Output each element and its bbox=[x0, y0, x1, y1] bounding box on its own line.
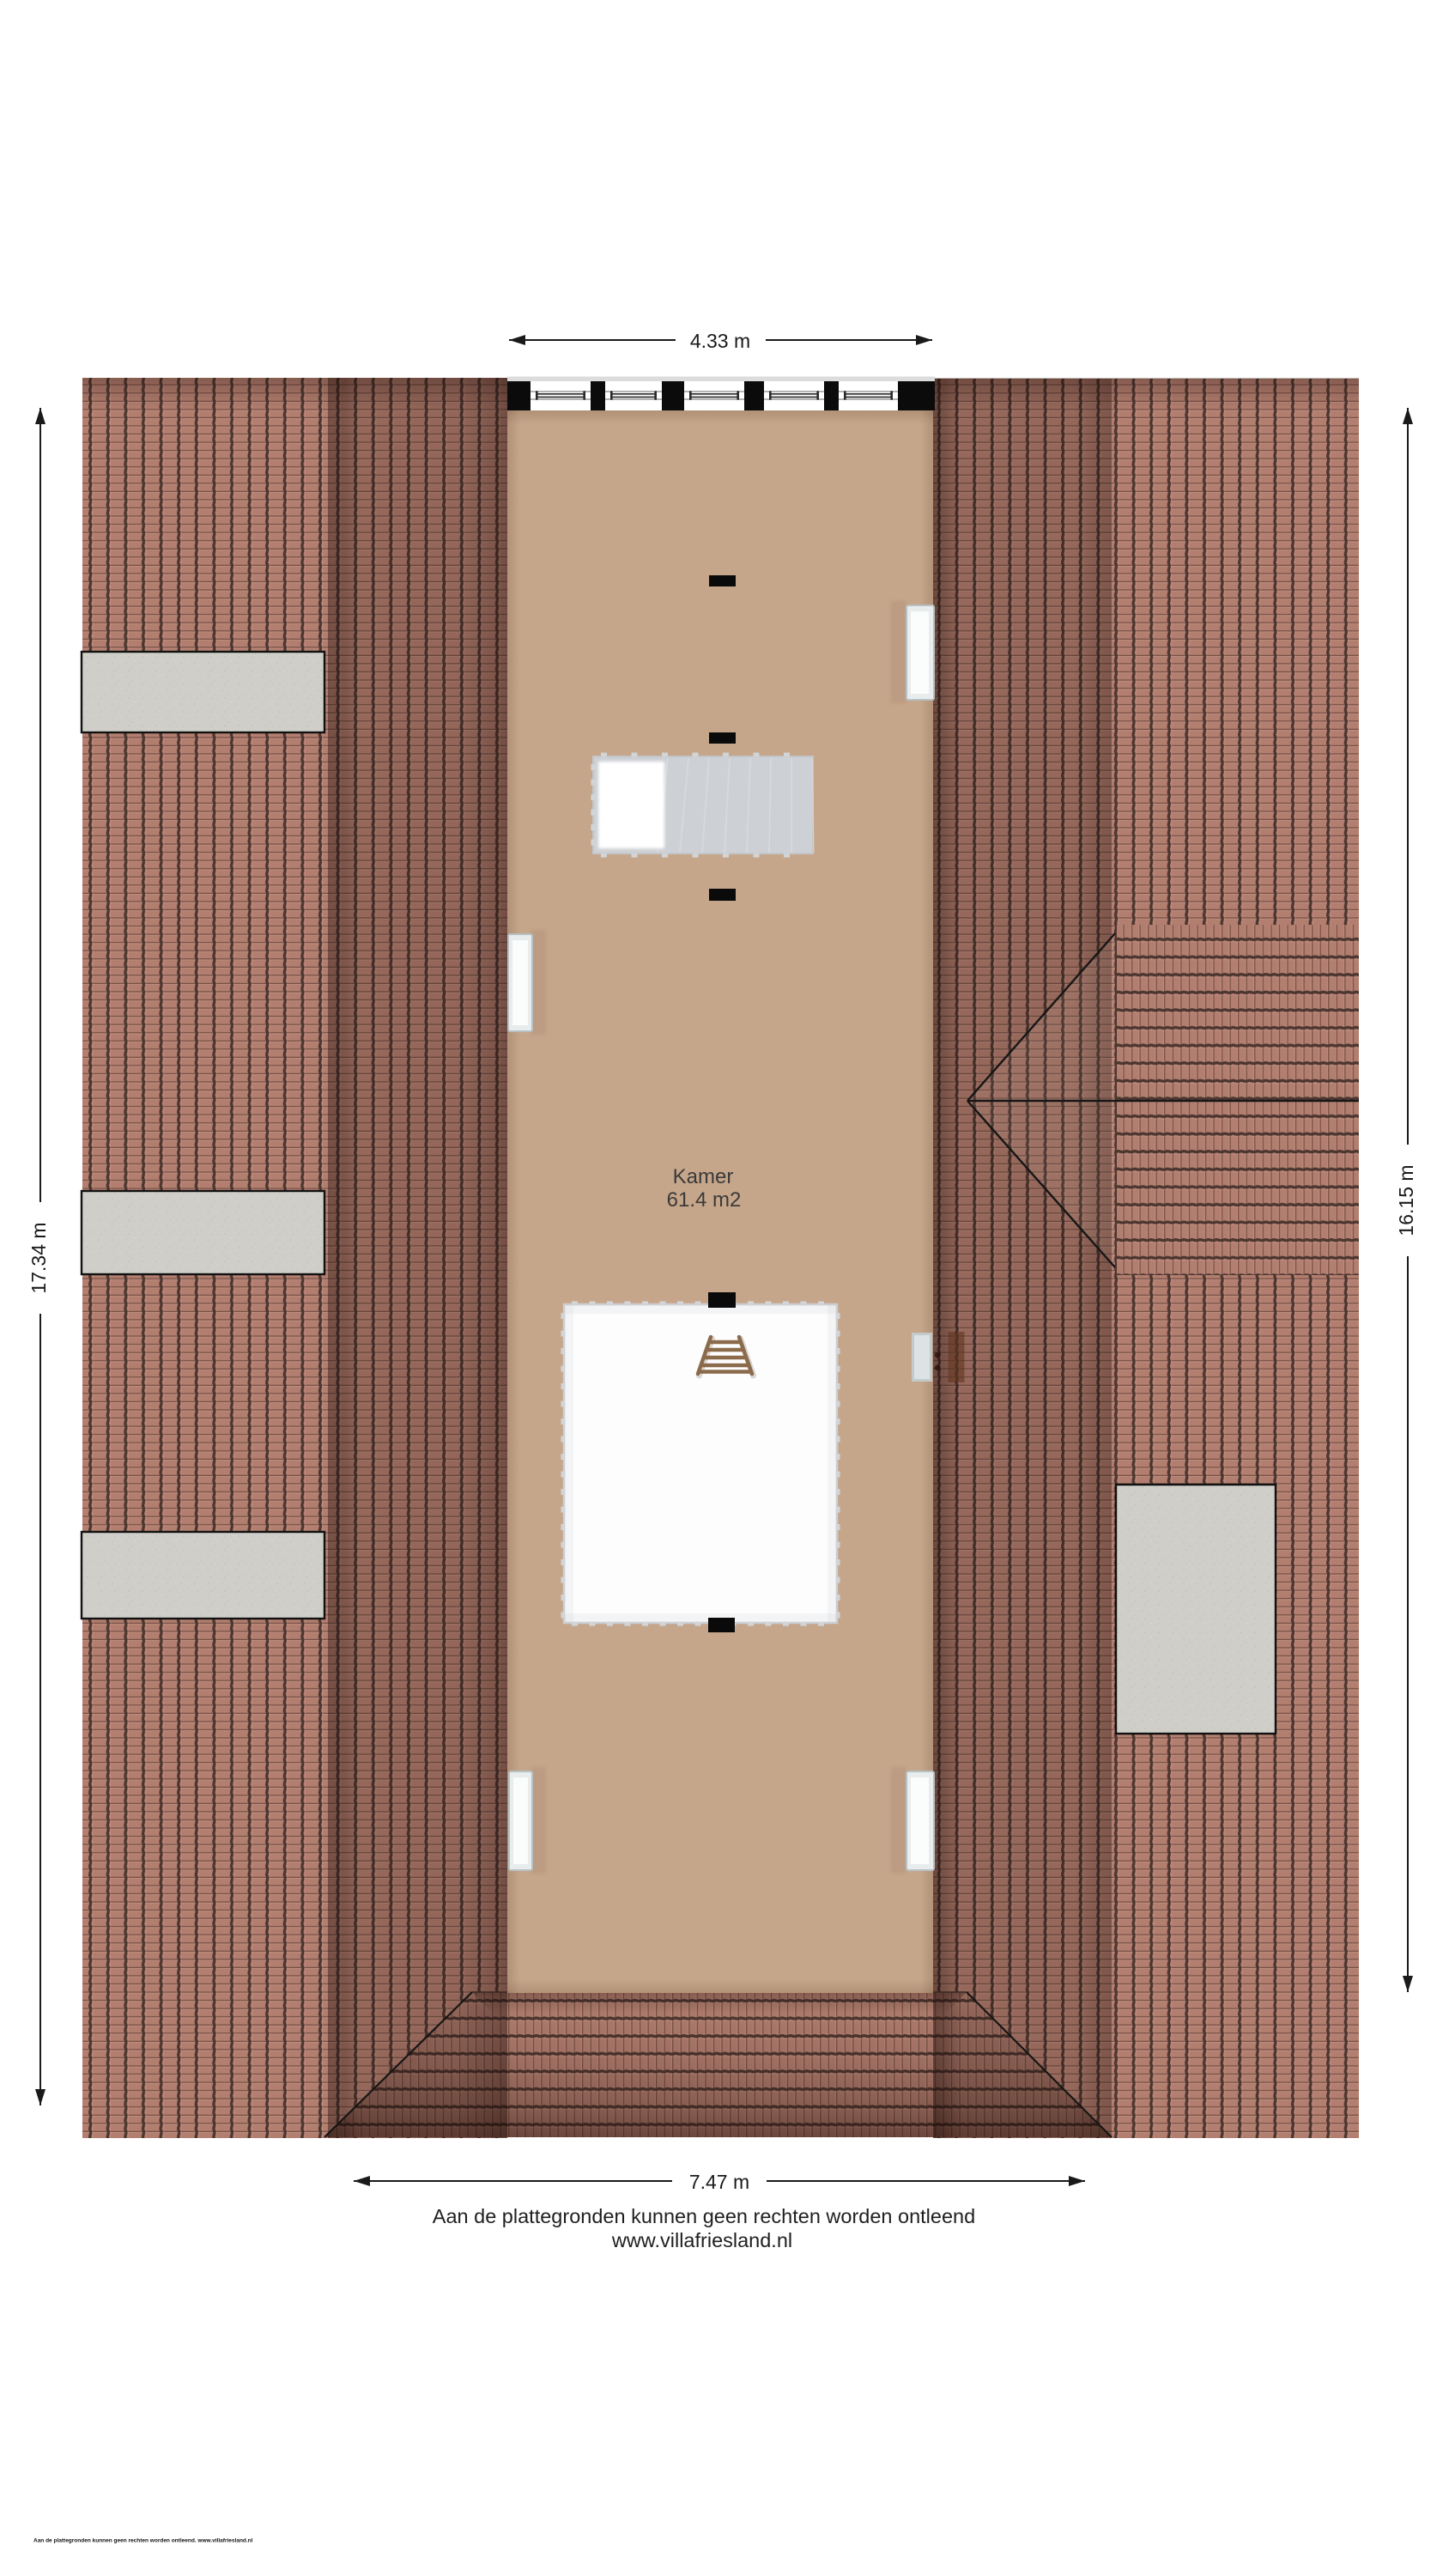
svg-text:www.villafriesland.nl: www.villafriesland.nl bbox=[611, 2229, 792, 2251]
svg-text:61.4 m2: 61.4 m2 bbox=[667, 1188, 742, 1212]
svg-text:4.33 m: 4.33 m bbox=[690, 330, 750, 352]
svg-text:7.47 m: 7.47 m bbox=[689, 2171, 749, 2193]
svg-text:17.34 m: 17.34 m bbox=[27, 1222, 50, 1293]
svg-text:Aan de plattegronden kunnen ge: Aan de plattegronden kunnen geen rechten… bbox=[433, 2205, 975, 2227]
svg-text:Kamer: Kamer bbox=[673, 1165, 734, 1188]
svg-text:16.15 m: 16.15 m bbox=[1395, 1164, 1417, 1236]
svg-text:Aan de plattegronden kunnen ge: Aan de plattegronden kunnen geen rechten… bbox=[33, 2538, 253, 2544]
